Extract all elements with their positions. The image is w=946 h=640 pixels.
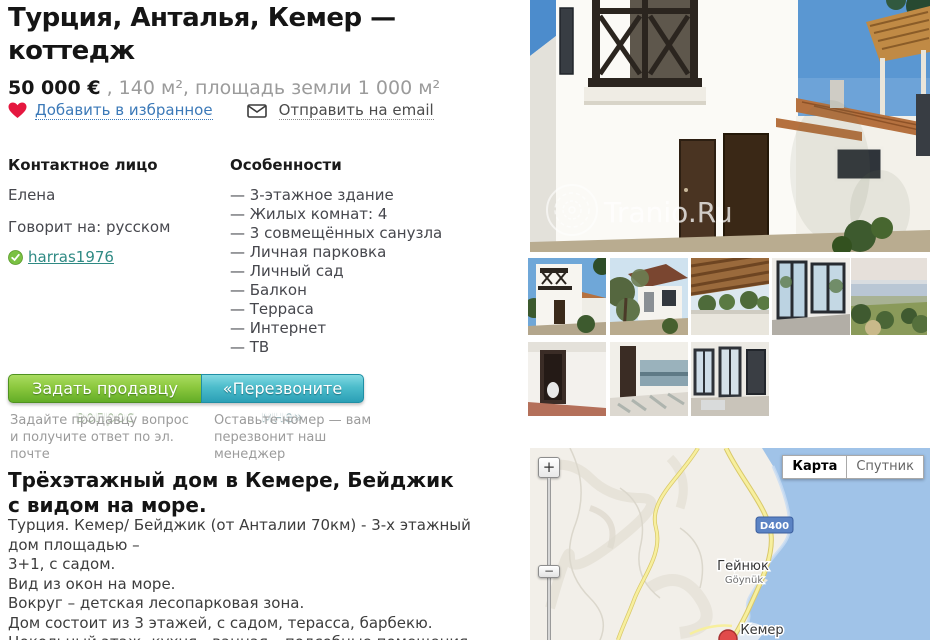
contact-section: Контактное лицо Елена Говорит на: русско… [8, 156, 223, 266]
map-label-goynuk-lat: Göynük [725, 575, 763, 586]
contact-heading: Контактное лицо [8, 156, 223, 174]
feature-item: — 3-этажное здание [230, 186, 480, 205]
ask-seller-hint: Задайте продавцу вопрос и получите ответ… [10, 412, 192, 463]
listing-page: Турция, Анталья, Кемер — коттедж 50 000 … [0, 0, 946, 640]
road-badge: D400 [756, 517, 793, 533]
thumbnail-interior-doors[interactable] [691, 342, 769, 416]
thumbnail-kitchen[interactable] [610, 342, 688, 416]
zoom-out-button[interactable]: − [538, 565, 560, 578]
feature-item: — Балкон [230, 281, 480, 300]
road-badge-label: D400 [760, 521, 789, 532]
heart-icon [8, 102, 27, 119]
thumbnail-interior-room[interactable] [528, 342, 606, 416]
price-details: , 140 м², площадь земли 1 000 м² [101, 77, 441, 99]
feature-item: — Личный сад [230, 262, 480, 281]
zoom-slider-track[interactable] [547, 478, 551, 640]
listing-actions: Добавить в избранное Отправить на email [8, 101, 434, 120]
thumbnail-terrace-view[interactable] [691, 258, 769, 335]
map-type-satellite-button[interactable]: Спутник [846, 455, 924, 479]
map-type-map-button[interactable]: Карта [782, 455, 846, 479]
thumbnail-exterior-front[interactable] [528, 258, 606, 335]
features-heading: Особенности [230, 156, 480, 174]
main-photo[interactable]: Tranio.Ru [530, 0, 930, 252]
thumbnail-interior-windows[interactable] [772, 258, 850, 335]
ask-seller-button[interactable]: Задать продавцу вопрос [8, 374, 201, 403]
thumbnail-exterior-garden[interactable] [610, 258, 688, 335]
zoom-in-button[interactable]: + [538, 457, 560, 478]
messenger-username-link[interactable]: harras1976 [28, 248, 114, 266]
messenger-status-icon [8, 250, 23, 265]
call-me-back-button[interactable]: «Перезвоните мне» [201, 374, 364, 403]
feature-item: — Терраса [230, 300, 480, 319]
add-to-favorites-link[interactable]: Добавить в избранное [35, 101, 213, 120]
contact-language: Говорит на: русском [8, 218, 223, 236]
contact-name: Елена [8, 186, 223, 204]
cta-hints: Задайте продавцу вопрос и получите ответ… [10, 412, 384, 463]
feature-item: — 3 совмещённых санузла [230, 224, 480, 243]
location-map[interactable]: D400 Гейнюк Göynük Кемер + − Карта Спутн… [530, 448, 930, 640]
map-label-goynuk-ru: Гейнюк [717, 559, 769, 574]
feature-item: — Личная парковка [230, 243, 480, 262]
watermark-text: Tranio.Ru [603, 196, 733, 229]
envelope-icon [247, 104, 267, 118]
price-value: 50 000 € [8, 77, 101, 99]
features-list: — 3-этажное здание — Жилых комнат: 4 — 3… [230, 186, 480, 357]
send-email-link[interactable]: Отправить на email [279, 101, 434, 120]
feature-item: — ТВ [230, 338, 480, 357]
thumbnail-landscape-view[interactable] [851, 258, 927, 335]
features-section: Особенности — 3-этажное здание — Жилых к… [230, 156, 480, 357]
feature-item: — Интернет [230, 319, 480, 338]
map-label-kemer: Кемер [740, 623, 783, 638]
page-title: Турция, Анталья, Кемер — коттедж [8, 2, 480, 68]
description-heading: Трёхэтажный дом в Кемере, Бейджик с видо… [8, 468, 458, 518]
price-row: 50 000 € , 140 м², площадь земли 1 000 м… [8, 77, 478, 99]
feature-item: — Жилых комнат: 4 [230, 205, 480, 224]
call-me-back-hint: Оставьте номер — вам перезвонит наш мене… [214, 412, 384, 463]
messenger-row: harras1976 [8, 248, 223, 266]
description-text: Турция. Кемер/ Бейджик (от Анталии 70км)… [8, 516, 478, 640]
cta-buttons: Задать продавцу вопрос «Перезвоните мне» [8, 374, 364, 403]
main-photo-illustration: Tranio.Ru [530, 0, 930, 252]
map-type-switcher: Карта Спутник [782, 455, 924, 479]
map-zoom-control: + − [538, 457, 560, 640]
